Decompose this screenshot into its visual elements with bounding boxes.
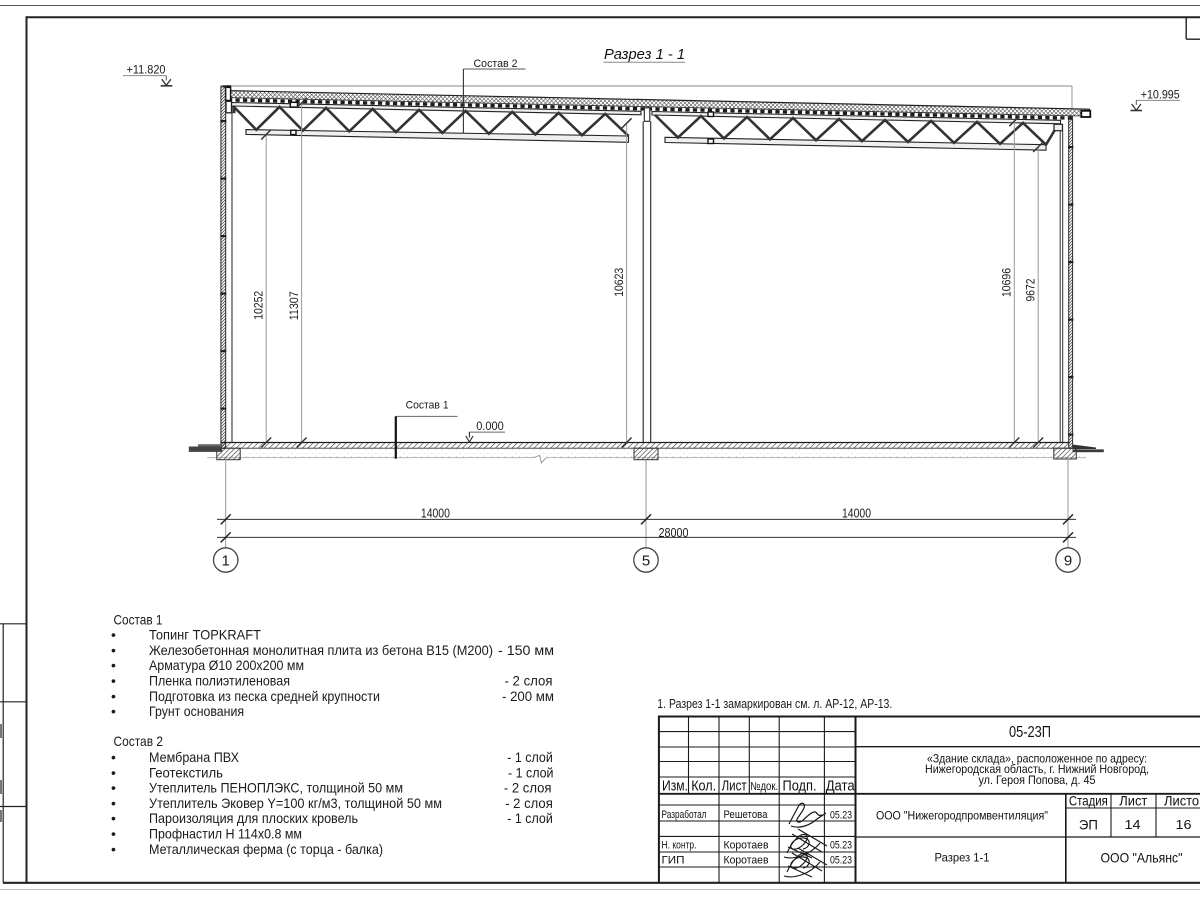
svg-text:ЭП: ЭП [1079,816,1098,832]
svg-text:•: • [111,627,116,643]
svg-text:- 150 мм: - 150 мм [498,642,554,658]
svg-text:Подготовка из песка средней кр: Подготовка из песка средней крупности [149,688,380,704]
svg-text:Лист: Лист [722,778,747,795]
svg-text:Металлическая ферма (с торца -: Металлическая ферма (с торца - балка) [149,841,383,857]
svg-text:Состав 1: Состав 1 [114,611,163,627]
svg-text:05.23: 05.23 [830,855,852,867]
svg-text:9672: 9672 [1024,278,1038,301]
svg-text:Железобетонная монолитная плит: Железобетонная монолитная плита из бетон… [149,642,493,658]
svg-text:9: 9 [1064,552,1072,569]
svg-text:Лист: Лист [1119,794,1148,809]
svg-text:1: 1 [222,552,230,569]
svg-text:Арматура Ø10 200х200 мм: Арматура Ø10 200х200 мм [149,657,304,673]
svg-text:Мембрана ПВХ: Мембрана ПВХ [149,749,240,765]
svg-text:ул. Героя Попова, д. 45: ул. Героя Попова, д. 45 [979,773,1096,787]
svg-text:Пленка полиэтиленовая: Пленка полиэтиленовая [149,673,290,689]
svg-text:•: • [111,749,116,765]
svg-text:14000: 14000 [842,507,871,521]
svg-text:•: • [111,703,116,719]
svg-text:- 2 слоя: - 2 слоя [505,795,553,811]
svg-text:№док.: №док. [750,781,778,793]
svg-text:•: • [111,642,116,658]
svg-text:Пароизоляция для плоских крове: Пароизоляция для плоских кровель [149,810,358,826]
svg-text:05-23П: 05-23П [1009,724,1051,741]
svg-text:- 1 слой: - 1 слой [508,764,554,780]
svg-text:- 200 мм: - 200 мм [502,688,554,704]
svg-text:+10.995: +10.995 [1141,88,1180,101]
svg-text:10252: 10252 [252,291,266,320]
svg-text:Грунт основания: Грунт основания [149,703,244,719]
svg-text:Утеплитель Эковер Y=100 кг/м3,: Утеплитель Эковер Y=100 кг/м3, толщиной … [149,795,442,811]
svg-text:Н. контр.: Н. контр. [662,840,697,852]
svg-text:1. Разрез 1-1 замаркирован см.: 1. Разрез 1-1 замаркирован см. л. АР-12,… [657,697,892,711]
svg-text:11307: 11307 [287,291,301,320]
svg-text:Разрез 1 - 1: Разрез 1 - 1 [604,46,685,63]
svg-text:- 2 слоя: - 2 слоя [504,780,552,796]
svg-text:14: 14 [1125,817,1141,832]
svg-text:•: • [111,810,116,826]
svg-text:Коротаев: Коротаев [724,840,769,852]
svg-text:10696: 10696 [1000,268,1014,297]
svg-text:- 1 слой: - 1 слой [507,749,553,765]
svg-text:ООО "Нижегородпромвентиляция": ООО "Нижегородпромвентиляция" [876,809,1048,823]
svg-text:10623: 10623 [612,268,626,297]
svg-text:•: • [111,688,116,704]
svg-text:28000: 28000 [659,526,689,540]
svg-text:Состав 2: Состав 2 [474,58,518,70]
svg-text:Кол.: Кол. [691,778,716,795]
svg-text:ООО "Альянс": ООО "Альянс" [1101,851,1183,866]
svg-text:05.23: 05.23 [830,840,852,852]
svg-text:•: • [111,673,116,689]
svg-text:5: 5 [642,552,650,569]
svg-text:•: • [111,780,116,796]
svg-text:Изм.: Изм. [662,778,688,795]
svg-text:Геотекстиль: Геотекстиль [149,764,223,780]
svg-text:Утеплитель ПЕНОПЛЭКС, толщиной: Утеплитель ПЕНОПЛЭКС, толщиной 50 мм [149,780,403,796]
svg-text:Разрез 1-1: Разрез 1-1 [935,851,990,865]
svg-text:Коротаев: Коротаев [724,855,769,867]
svg-text:Состав 2: Состав 2 [114,733,164,749]
svg-text:Профнастил Н 114х0.8 мм: Профнастил Н 114х0.8 мм [149,826,302,842]
svg-text:Подп.: Подп. [783,778,817,795]
svg-text:•: • [111,841,116,857]
svg-text:•: • [111,795,116,811]
svg-text:Решетова: Решетова [724,809,769,821]
svg-text:16: 16 [1176,817,1192,832]
svg-text:14000: 14000 [421,507,450,521]
svg-text:05.23: 05.23 [830,810,852,822]
svg-text:Разработал: Разработал [662,809,707,821]
svg-text:Стадия: Стадия [1069,794,1108,809]
svg-text:Состав 1: Состав 1 [406,400,449,412]
svg-text:+11.820: +11.820 [127,63,166,76]
svg-text:Топинг TOPKRAFT: Топинг TOPKRAFT [149,627,261,643]
svg-text:0.000: 0.000 [476,421,504,433]
svg-text:- 1 слой: - 1 слой [507,810,553,826]
svg-text:- 2 слоя: - 2 слоя [505,673,553,689]
svg-text:•: • [111,826,116,842]
svg-text:•: • [111,657,116,673]
svg-text:Листов: Листов [1164,794,1200,809]
svg-text:•: • [111,764,116,780]
svg-text:ГИП: ГИП [662,855,685,867]
svg-text:Дата: Дата [826,778,856,795]
